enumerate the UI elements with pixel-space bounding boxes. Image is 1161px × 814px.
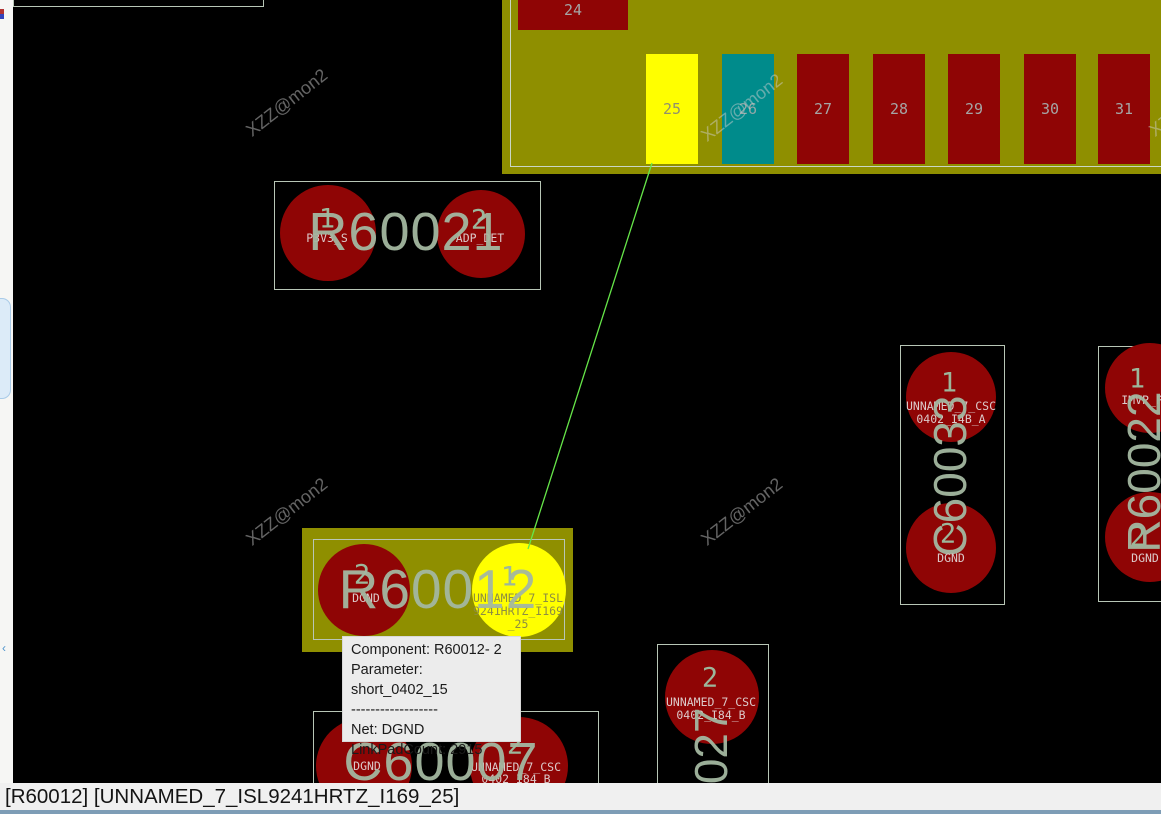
- c60033-pad1-number: 1: [941, 368, 957, 399]
- watermark-text: XZZ@mon2: [697, 474, 787, 550]
- pcb-viewer-window: 24 25 26 27 28 29 30 31 1 2 P3V3_S ADP_D…: [0, 0, 1161, 814]
- tooltip-component-line: Component: R60012- 2: [351, 640, 520, 660]
- connector-outline-left: [510, 0, 511, 167]
- pad-27[interactable]: 27: [797, 54, 849, 164]
- tooltip-net-line: Net: DGND: [351, 720, 520, 740]
- pad-24[interactable]: 24: [518, 0, 628, 30]
- pad-25-label: 25: [663, 100, 681, 118]
- pad-28[interactable]: 28: [873, 54, 925, 164]
- left-strip-icon-blue: [0, 14, 4, 19]
- pad-31[interactable]: 31: [1098, 54, 1150, 164]
- pad-29[interactable]: 29: [948, 54, 1000, 164]
- c60033-pad2-net: DGND: [937, 551, 965, 565]
- tooltip-linkpadcount-line: LinkPadCount: 2915: [351, 740, 520, 760]
- tooltip-parameter-line: Parameter: short_0402_15: [351, 660, 520, 700]
- pad-28-label: 28: [890, 100, 908, 118]
- component-tooltip: Component: R60012- 2 Parameter: short_04…: [342, 636, 521, 742]
- r60022-pad2-net: DGND: [1131, 551, 1159, 565]
- pad-30-label: 30: [1041, 100, 1059, 118]
- left-panel-strip: ‹: [0, 0, 13, 783]
- chevron-left-icon: ‹: [2, 641, 6, 655]
- r60022-pad2-number: 2: [1130, 522, 1146, 553]
- status-bar-selection-text: [R60012] [UNNAMED_7_ISL9241HRTZ_I169_25]: [5, 785, 459, 809]
- r60012-refdes: R60012: [339, 557, 538, 621]
- c60033-pad2-number: 2: [940, 519, 956, 550]
- pad-24-label: 24: [564, 1, 582, 19]
- pad-31-label: 31: [1115, 100, 1133, 118]
- pad-29-label: 29: [965, 100, 983, 118]
- r60021-refdes: R60021: [308, 201, 503, 263]
- connector-outline-bottom: [510, 166, 1161, 167]
- r60022-pad1-number: 1: [1129, 364, 1145, 395]
- pad-30[interactable]: 30: [1024, 54, 1076, 164]
- component-outline-topleft: [13, 0, 264, 7]
- status-bar-bottom-line: [0, 810, 1161, 814]
- pad-27-label: 27: [814, 100, 832, 118]
- tooltip-separator-line: ------------------: [351, 700, 520, 720]
- c60027-pad2-number: 2: [702, 663, 718, 694]
- panel-collapse-tab[interactable]: ‹: [0, 298, 11, 399]
- pad-25-highlighted[interactable]: 25: [646, 54, 698, 164]
- watermark-text: XZZ@mon2: [242, 65, 332, 141]
- status-bar: [R60012] [UNNAMED_7_ISL9241HRTZ_I169_25]: [0, 783, 1161, 814]
- connector-body[interactable]: 24 25 26 27 28 29 30 31: [502, 0, 1161, 174]
